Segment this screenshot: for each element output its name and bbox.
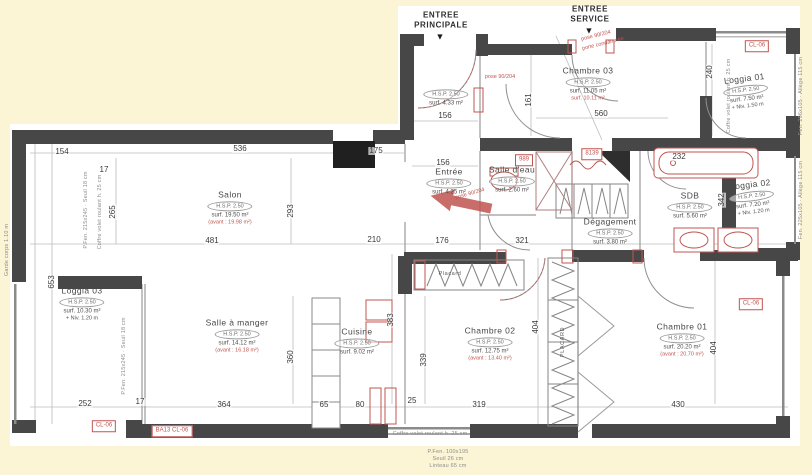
dimension-label: 240 <box>706 64 714 79</box>
dimension-label: 265 <box>109 204 117 219</box>
dimension-label: 252 <box>77 400 92 408</box>
dimension-label: 80 <box>355 401 366 409</box>
room-label-loggia-02: Loggia 02H.S.P. 2.50surf. 7.20 m²+ Niv. … <box>727 178 776 219</box>
room-surface: surf. 12.75 m² <box>471 348 508 355</box>
dimension-label: 339 <box>420 352 428 367</box>
room-hsp-badge: H.S.P. 2.50 <box>659 333 704 343</box>
window-spec-note: Coffre volet roulant h. 25 cm <box>97 175 103 250</box>
window-spec-note: Seuil 26 cm <box>433 456 464 462</box>
room-name: Chambre 03 <box>563 66 614 76</box>
red-annotation: pose 90/204 <box>485 74 515 80</box>
room-hsp-badge: H.S.P. 2.50 <box>489 176 534 186</box>
room-note: (avant : 19.98 m²) <box>208 219 251 225</box>
room-label-sdb: SDBH.S.P. 2.50surf. 5.60 m² <box>667 192 712 221</box>
window-spec-note: Linteau 65 cm <box>429 463 466 469</box>
room-label-chambre-03: Chambre 03H.S.P. 2.50surf. 11.05 m²surf.… <box>563 66 614 101</box>
room-name: Salon <box>218 190 242 200</box>
room-note: surf. 10.11 m² <box>571 95 605 101</box>
labels-overlay: 1545361751715615616156024023234226548129… <box>0 0 812 475</box>
room-hsp-badge: H.S.P. 2.50 <box>587 228 632 238</box>
room-label-salle-a-manger: Salle à mangerH.S.P. 2.50surf. 14.12 m²(… <box>206 318 269 353</box>
placard-label: Placard <box>439 271 462 277</box>
room-surface: surf. 20.20 m² <box>663 344 700 351</box>
room-label-chambre-01: Chambre 01H.S.P. 2.50surf. 20.20 m²(avan… <box>657 322 708 357</box>
room-surface: surf. 2.60 m² <box>495 188 529 195</box>
window-spec-note: P.Fen. 215x245 · Seuil 18 cm <box>121 317 127 394</box>
red-tag: CL-06 <box>745 40 769 52</box>
window-spec-note: Coffre volet roulant h. 25 cm <box>393 431 468 437</box>
dimension-label: 536 <box>232 145 247 153</box>
room-hsp-badge: H.S.P. 2.50 <box>667 202 712 212</box>
room-hsp-badge: H.S.P. 2.50 <box>214 329 259 339</box>
room-hsp-badge: H.S.P. 2.50 <box>423 89 468 99</box>
room-hsp-badge: H.S.P. 2.50 <box>565 77 610 87</box>
room-label-salle-deau: Salle d'eauH.S.P. 2.50surf. 2.60 m² <box>489 166 535 195</box>
dimension-label: 653 <box>48 274 56 289</box>
red-tag: CL-06 <box>739 298 763 310</box>
room-hsp-badge: H.S.P. 2.50 <box>334 338 379 348</box>
dimension-label: 560 <box>593 110 608 118</box>
room-surface: surf. 19.50 m² <box>211 212 248 219</box>
dimension-label: 342 <box>718 192 726 207</box>
room-label-hall: H.S.P. 2.50surf. 4.33 m² <box>423 88 468 107</box>
dimension-label: 404 <box>532 319 540 334</box>
room-surface: surf. 11.05 m² <box>570 88 607 95</box>
room-surface: surf. 3.80 m² <box>593 240 627 247</box>
dimension-label: 430 <box>670 401 685 409</box>
red-tag: 989 <box>515 154 533 166</box>
room-label-salon: SalonH.S.P. 2.50surf. 19.50 m²(avant : 1… <box>207 190 252 225</box>
window-spec-note: Fen. 296x105 · Allège 115 cm <box>798 57 804 135</box>
room-name: Cuisine <box>341 328 372 338</box>
room-hsp-badge: H.S.P. 2.50 <box>207 201 252 211</box>
dimension-label: 156 <box>437 112 452 120</box>
room-label-chambre-02: Chambre 02H.S.P. 2.50surf. 12.75 m²(avan… <box>465 326 516 361</box>
room-note: (avant : 16.18 m²) <box>215 347 258 353</box>
dimension-label: 293 <box>287 203 295 218</box>
dimension-label: 17 <box>99 166 110 174</box>
entrance-label: ENTREE SERVICE <box>570 4 609 23</box>
dimension-label: 360 <box>287 349 295 364</box>
room-surface: surf. 9.02 m² <box>340 350 374 357</box>
room-name: Chambre 02 <box>465 326 516 336</box>
dimension-label: 319 <box>471 401 486 409</box>
window-spec-note: P.Fen. 215x245 · Seuil 18 cm <box>83 171 89 248</box>
red-tag: BA13 CL-06 <box>152 425 193 437</box>
placard-label: PLACARD <box>560 327 566 357</box>
window-spec-note: Coffre volet roulant h. 25 cm <box>726 59 732 134</box>
red-tag: CL-06 <box>92 420 116 432</box>
red-tag: 8139 <box>581 148 602 160</box>
room-surface: surf. 5.60 m² <box>673 214 707 221</box>
room-surface: surf. 14.12 m² <box>218 340 255 347</box>
room-hsp-badge: H.S.P. 2.50 <box>59 297 104 307</box>
room-note: + Niv. 1.20 m <box>66 315 98 321</box>
dimension-label: 383 <box>387 312 395 327</box>
dimension-label: 154 <box>54 148 69 156</box>
room-note: (avant : 13.40 m²) <box>468 355 511 361</box>
dimension-label: 210 <box>366 236 381 244</box>
dimension-label: 65 <box>319 401 330 409</box>
room-surface: surf. 4.33 m² <box>429 101 463 108</box>
entrance-label: ENTREE PRINCIPALE <box>414 10 468 29</box>
dimension-label: 175 <box>368 147 383 155</box>
dimension-label: 25 <box>407 397 418 405</box>
room-label-degagement: DégagementH.S.P. 2.50surf. 3.80 m² <box>584 218 637 247</box>
dimension-label: 364 <box>216 401 231 409</box>
room-hsp-badge: H.S.P. 2.50 <box>426 178 471 188</box>
dimension-label: 17 <box>135 398 146 406</box>
entrance-arrow-icon: ▼ <box>436 33 445 42</box>
window-spec-note: Garde corps 1.10 m <box>4 224 10 276</box>
room-name: Loggia 03 <box>62 286 103 296</box>
dimension-label: 481 <box>204 237 219 245</box>
room-label-loggia-03: Loggia 03H.S.P. 2.50surf. 10.30 m²+ Niv.… <box>59 286 104 321</box>
room-name: SDB <box>681 192 700 202</box>
floor-plan: 1545361751715615616156024023234226548129… <box>0 0 812 475</box>
dimension-label: 176 <box>434 237 449 245</box>
room-name: Salle d'eau <box>489 166 535 176</box>
window-spec-note: Fen. 225x105 · Allège 115 cm <box>798 161 804 239</box>
room-name: Chambre 01 <box>657 322 708 332</box>
dimension-label: 404 <box>710 340 718 355</box>
room-name: Entrée <box>435 168 462 178</box>
room-hsp-badge: H.S.P. 2.50 <box>467 337 512 347</box>
room-name: Salle à manger <box>206 318 269 328</box>
dimension-label: 321 <box>514 237 529 245</box>
window-spec-note: P.Fen. 100x195 <box>428 449 469 455</box>
room-surface: surf. 10.30 m² <box>63 308 100 315</box>
dimension-label: 161 <box>525 92 533 107</box>
room-note: (avant : 20.70 m²) <box>660 351 703 357</box>
room-name: Dégagement <box>584 218 637 228</box>
dimension-label: 232 <box>671 153 686 161</box>
room-label-cuisine: CuisineH.S.P. 2.50surf. 9.02 m² <box>334 328 379 357</box>
